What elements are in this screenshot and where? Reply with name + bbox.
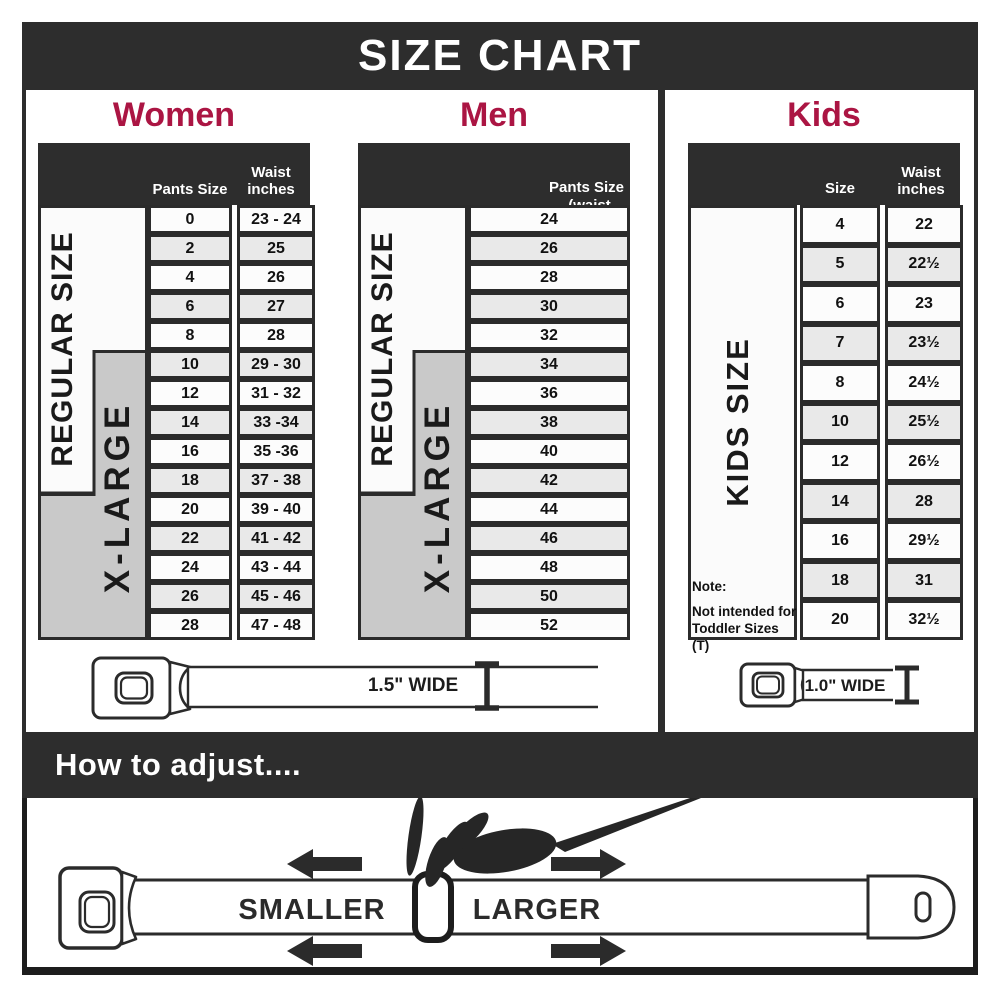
table-cell: 10: [800, 403, 880, 443]
larger-label: LARGER: [457, 894, 617, 927]
table-cell: 32: [468, 321, 630, 350]
panel-divider: [658, 90, 665, 732]
men-xlarge-label: X-LARGE: [418, 347, 462, 647]
section-heading-women: Women: [38, 95, 310, 135]
table-cell: 8: [148, 321, 232, 350]
table-cell: 10: [148, 350, 232, 379]
women-col-header-pants-size: Pants Size: [148, 181, 232, 198]
table-cell: 4: [800, 205, 880, 245]
table-cell: 26: [468, 234, 630, 263]
kids-col-header-size: Size: [800, 180, 880, 197]
men-col-header: Pants Size (waist inches): [468, 179, 630, 197]
table-cell: 43 - 44: [237, 553, 315, 582]
table-cell: 26: [237, 263, 315, 292]
kids-note-line: Not intended for: [692, 603, 798, 620]
table-cell: 18: [148, 466, 232, 495]
table-cell: 52: [468, 611, 630, 640]
table-cell: 12: [148, 379, 232, 408]
table-cell: 16: [148, 437, 232, 466]
kids-col-header-waist: Waist inches: [885, 164, 957, 198]
table-cell: 25: [237, 234, 315, 263]
table-cell: 30: [468, 292, 630, 321]
table-cell: 33 -34: [237, 408, 315, 437]
table-cell: 8: [800, 363, 880, 403]
belt-tip-icon: [868, 876, 954, 938]
table-cell: 18: [800, 561, 880, 601]
table-cell: 41 - 42: [237, 524, 315, 553]
table-cell: 28: [148, 611, 232, 640]
table-cell: 24½: [885, 363, 963, 403]
table-cell: 23½: [885, 324, 963, 364]
arrow-right-icon: [551, 936, 626, 966]
table-cell: 0: [148, 205, 232, 234]
table-cell: 23: [885, 284, 963, 324]
kids-size-label: KIDS SIZE: [720, 272, 764, 572]
adjust-heading: How to adjust....: [55, 747, 301, 783]
men-table-header: Pants Size (waist inches): [358, 143, 630, 205]
women-col-header-waist: Waist inches: [235, 164, 307, 198]
women-xlarge-label: X-LARGE: [98, 347, 142, 647]
table-cell: 20: [800, 600, 880, 640]
adult-belt-illustration: [38, 648, 638, 723]
table-cell: 28: [237, 321, 315, 350]
table-cell: 47 - 48: [237, 611, 315, 640]
section-heading-men: Men: [358, 95, 630, 135]
table-cell: 24: [468, 205, 630, 234]
table-cell: 45 - 46: [237, 582, 315, 611]
table-cell: 44: [468, 495, 630, 524]
table-cell: 6: [148, 292, 232, 321]
table-cell: 4: [148, 263, 232, 292]
table-cell: 31: [885, 561, 963, 601]
table-cell: 24: [148, 553, 232, 582]
size-chart-page: SIZE CHART Women Men Kids Pants Size Wai…: [0, 0, 1000, 1000]
adjust-belt-illustration: [22, 798, 968, 967]
table-cell: 25½: [885, 403, 963, 443]
table-cell: 38: [468, 408, 630, 437]
table-cell: 23 - 24: [237, 205, 315, 234]
kids-table-header: Size Waist inches: [688, 143, 960, 205]
table-cell: 16: [800, 521, 880, 561]
table-cell: 5: [800, 245, 880, 285]
table-cell: 29 - 30: [237, 350, 315, 379]
table-cell: 50: [468, 582, 630, 611]
women-regular-size-label: REGULAR SIZE: [46, 204, 86, 494]
adult-belt-width-label: 1.5" WIDE: [348, 675, 478, 697]
table-cell: 40: [468, 437, 630, 466]
table-cell: 14: [148, 408, 232, 437]
table-cell: 28: [468, 263, 630, 292]
seatbelt-buckle-icon: [93, 658, 190, 718]
table-cell: 35 -36: [237, 437, 315, 466]
table-cell: 42: [468, 466, 630, 495]
table-cell: 34: [468, 350, 630, 379]
table-cell: 22: [885, 205, 963, 245]
table-cell: 2: [148, 234, 232, 263]
table-cell: 31 - 32: [237, 379, 315, 408]
arrow-left-icon: [287, 936, 362, 966]
table-cell: 20: [148, 495, 232, 524]
table-cell: 22: [148, 524, 232, 553]
table-cell: 27: [237, 292, 315, 321]
table-cell: 6: [800, 284, 880, 324]
kids-note: Note: Not intended for Toddler Sizes (T): [692, 578, 798, 654]
kids-note-line: Note:: [692, 578, 798, 595]
table-cell: 37 - 38: [237, 466, 315, 495]
seatbelt-buckle-icon: [60, 868, 136, 948]
adjust-section-band: How to adjust....: [22, 732, 978, 798]
table-cell: 39 - 40: [237, 495, 315, 524]
women-table-header: Pants Size Waist inches: [38, 143, 310, 205]
section-heading-kids: Kids: [688, 95, 960, 135]
arrow-left-icon: [287, 849, 362, 879]
arrow-right-icon: [551, 849, 626, 879]
table-cell: 28: [885, 482, 963, 522]
table-cell: 36: [468, 379, 630, 408]
smaller-label: SMALLER: [232, 894, 392, 927]
table-cell: 26½: [885, 442, 963, 482]
page-title: SIZE CHART: [22, 22, 978, 90]
table-cell: 22½: [885, 245, 963, 285]
table-cell: 26: [148, 582, 232, 611]
table-cell: 12: [800, 442, 880, 482]
table-cell: 14: [800, 482, 880, 522]
men-size-table: 242628303234363840424446485052: [468, 205, 630, 640]
table-cell: 32½: [885, 600, 963, 640]
table-cell: 29½: [885, 521, 963, 561]
men-regular-size-label: REGULAR SIZE: [366, 204, 406, 494]
kids-size-table: 422522½623723½824½1025½1226½14281629½183…: [800, 205, 963, 640]
table-cell: 46: [468, 524, 630, 553]
table-cell: 7: [800, 324, 880, 364]
women-size-table: 023 - 242254266278281029 - 301231 - 3214…: [148, 205, 315, 640]
kids-belt-width-label: 1.0" WIDE: [780, 676, 910, 696]
table-cell: 48: [468, 553, 630, 582]
